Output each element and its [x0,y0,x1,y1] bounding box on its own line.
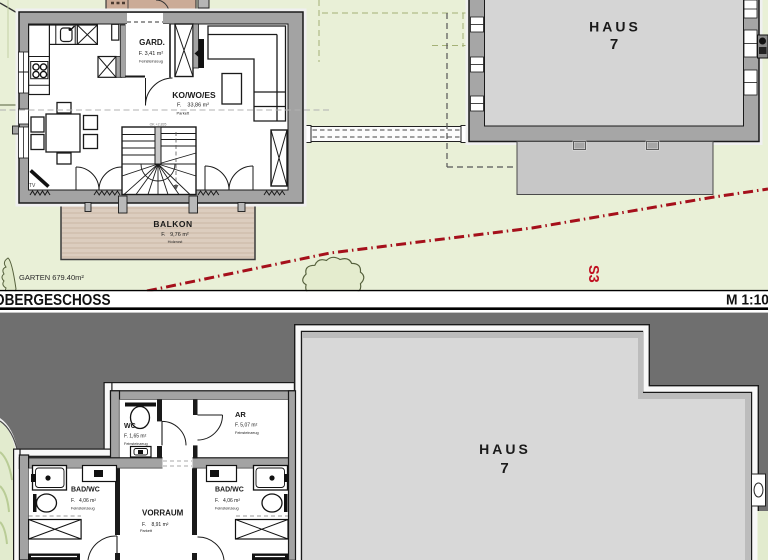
svg-text:Feinsteinzeug: Feinsteinzeug [215,507,239,511]
svg-text:7: 7 [610,36,618,53]
svg-text:F. 3,41 m²: F. 3,41 m² [139,51,164,57]
svg-text:Parkett: Parkett [177,111,191,116]
svg-text:BALKON: BALKON [153,219,192,229]
svg-text:Feinsteinzeug: Feinsteinzeug [71,507,95,511]
svg-text:AR: AR [235,410,246,419]
svg-text:VORRAUM: VORRAUM [142,509,184,518]
svg-text:Holzrost: Holzrost [168,239,184,244]
svg-text:BAD/WC: BAD/WC [215,487,244,494]
svg-text:M 1:100: M 1:100 [726,292,768,309]
svg-text:TV: TV [29,183,36,189]
svg-text:F. 33,86 m²: F. 33,86 m² [177,103,209,109]
svg-text:F. 9,76 m²: F. 9,76 m² [161,232,189,238]
svg-text:S3: S3 [585,265,601,283]
svg-text:7: 7 [500,460,508,477]
svg-text:F. 8,91 m²: F. 8,91 m² [142,522,169,528]
svg-text:HAUS: HAUS [589,19,641,35]
svg-text:WC: WC [124,423,136,430]
svg-text:Feinsteinzeug: Feinsteinzeug [124,442,148,446]
svg-text:Feinsteinzeug: Feinsteinzeug [235,431,259,435]
svg-text:GARD.: GARD. [139,38,165,47]
svg-text:KO/WO/ES: KO/WO/ES [172,90,216,100]
svg-text:Parkett: Parkett [140,529,153,533]
svg-text:GARTEN 679.40m²: GARTEN 679.40m² [19,273,84,282]
svg-text:OK +2,835: OK +2,835 [150,123,167,127]
svg-text:F. 4,06 m²: F. 4,06 m² [71,498,96,504]
svg-text:F. 4,06 m²: F. 4,06 m² [215,498,240,504]
svg-text:F. 5,07 m²: F. 5,07 m² [235,423,258,429]
svg-text:F. 1,65 m²: F. 1,65 m² [124,434,147,440]
svg-text:OBERGESCHOSS: OBERGESCHOSS [0,292,111,309]
svg-text:BAD/WC: BAD/WC [71,487,100,494]
svg-text:HAUS: HAUS [479,441,531,457]
svg-text:Feinsteinzeug: Feinsteinzeug [139,60,163,64]
